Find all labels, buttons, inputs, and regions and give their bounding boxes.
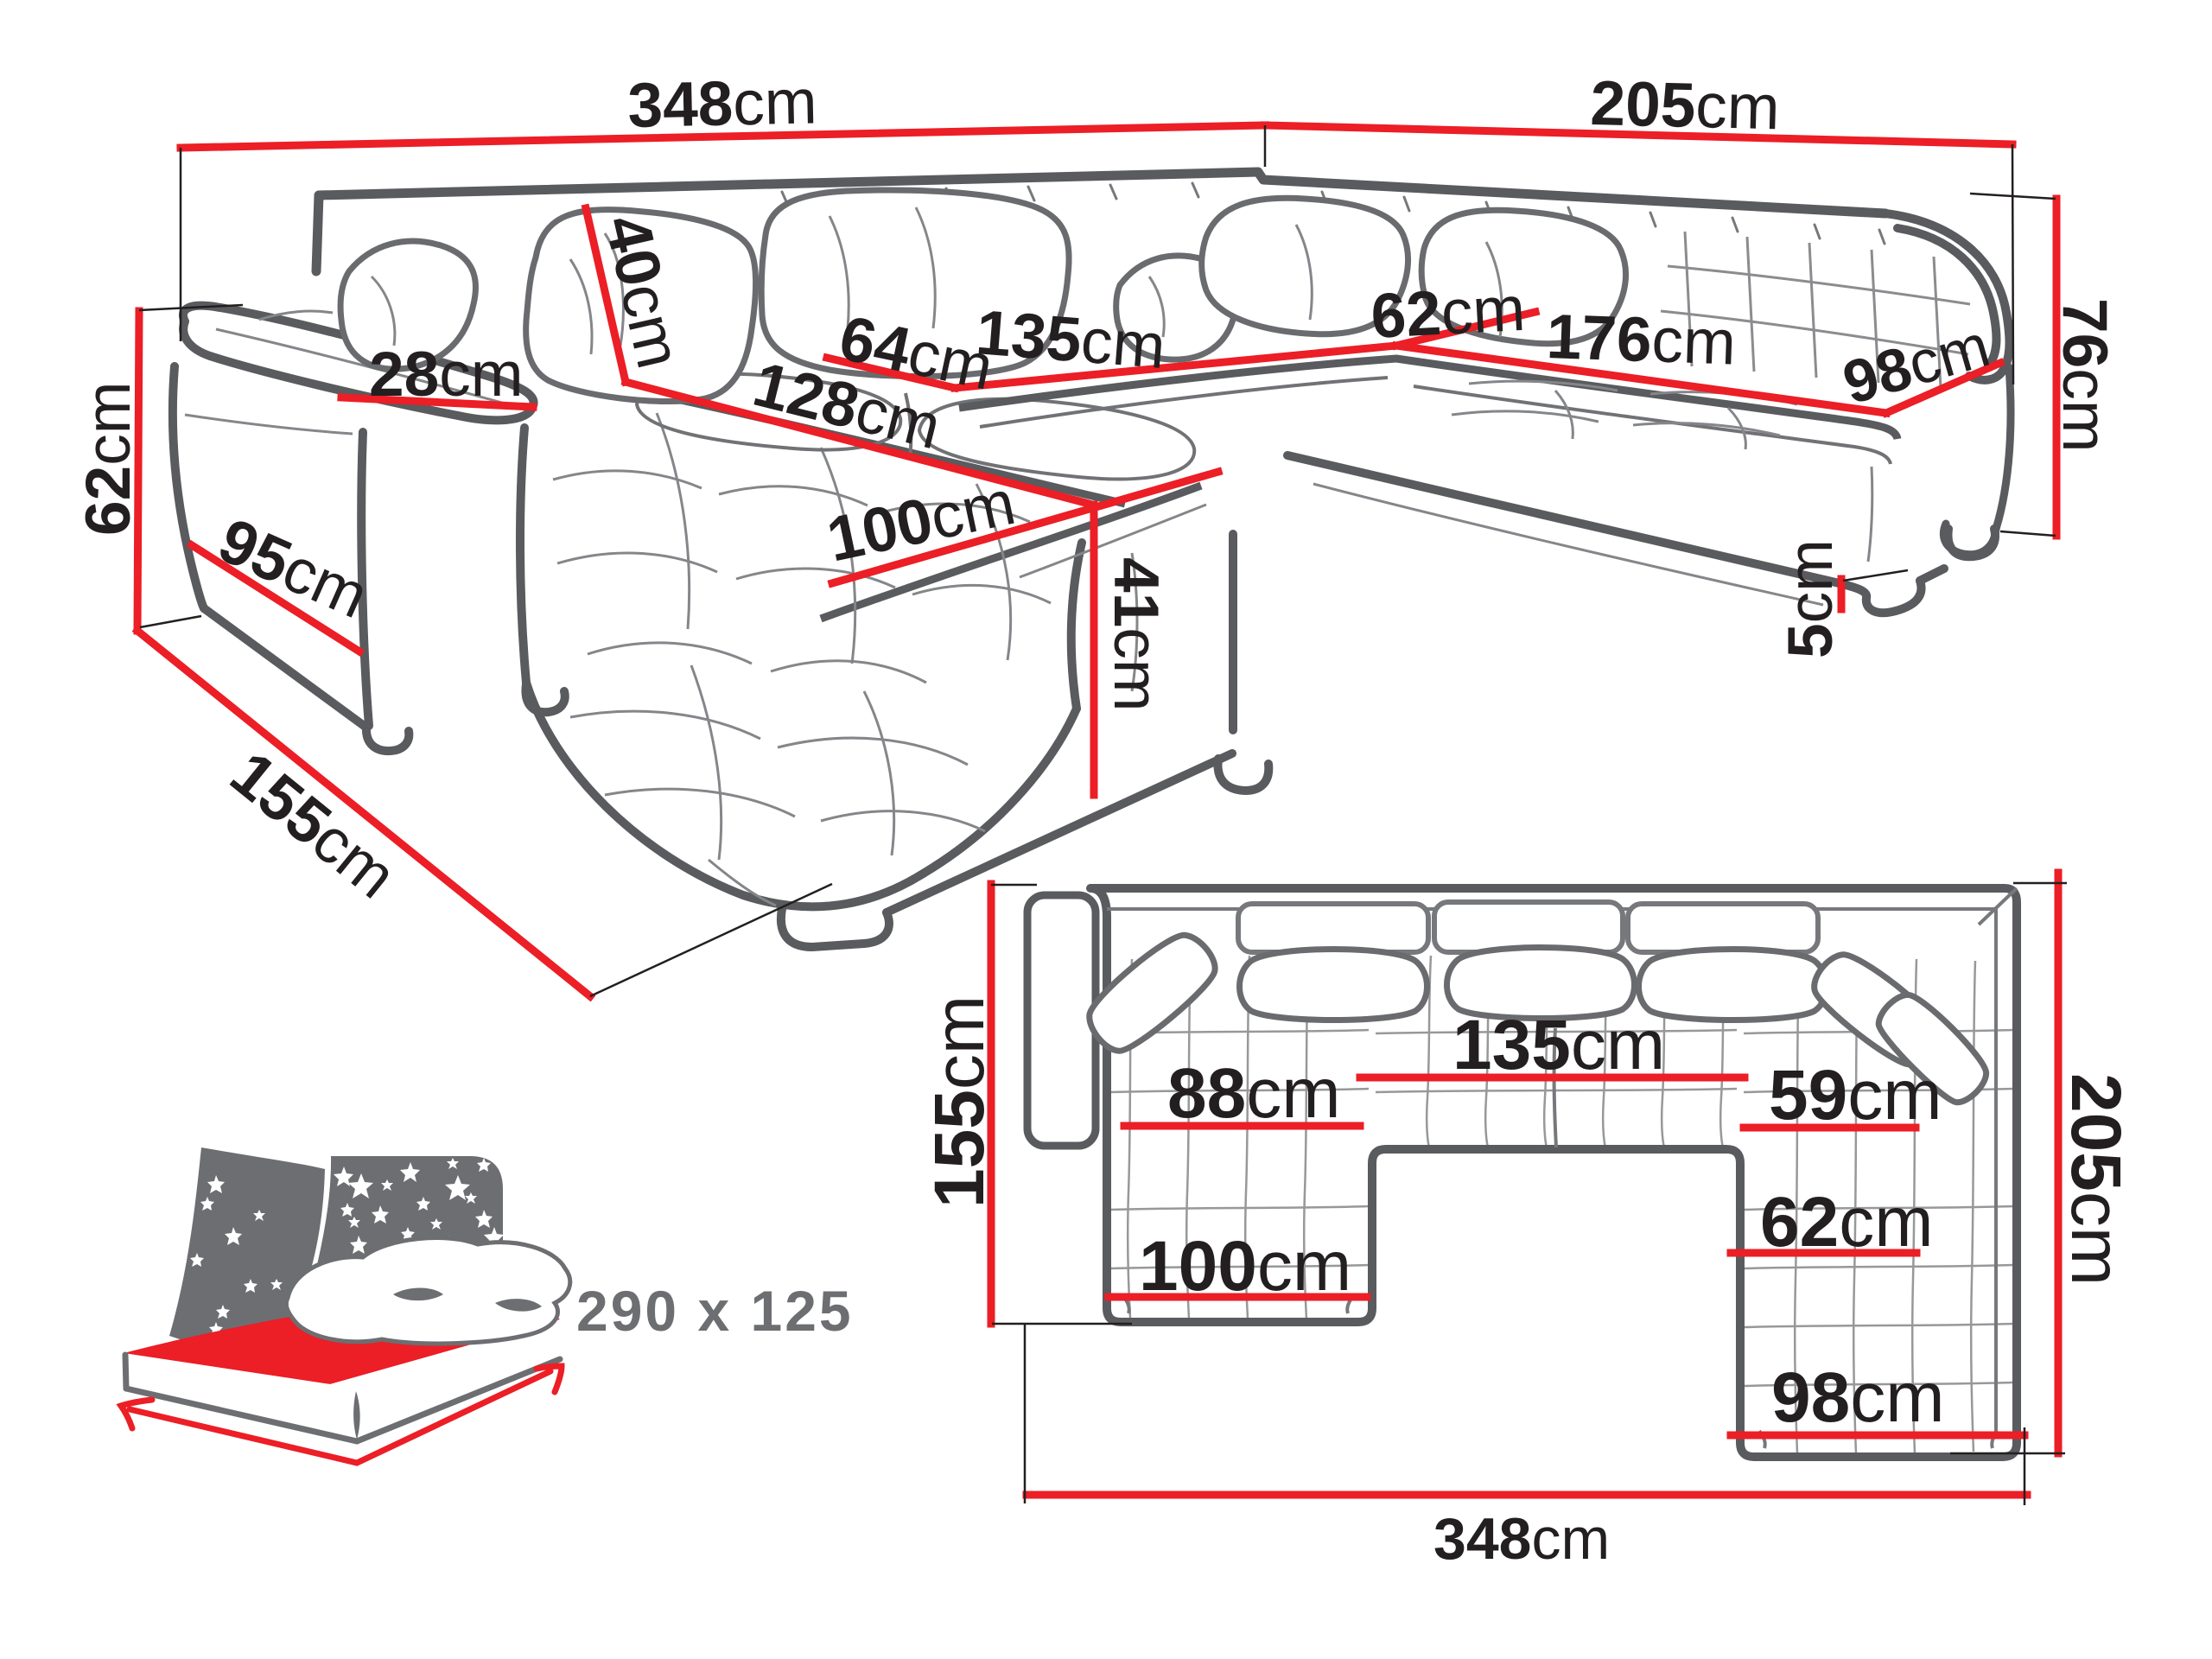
svg-text:205cm: 205cm: [2056, 1073, 2135, 1286]
svg-text:62cm: 62cm: [73, 381, 143, 536]
svg-text:88cm: 88cm: [1167, 1054, 1341, 1133]
svg-text:28cm: 28cm: [369, 340, 524, 410]
svg-text:176cm: 176cm: [1545, 302, 1737, 378]
svg-text:348cm: 348cm: [1433, 1506, 1610, 1572]
svg-text:135cm: 135cm: [1452, 1006, 1665, 1084]
svg-text:135cm: 135cm: [974, 297, 1168, 382]
svg-text:5cm: 5cm: [1776, 539, 1846, 658]
svg-text:348cm: 348cm: [627, 67, 818, 141]
svg-text:100cm: 100cm: [1139, 1227, 1351, 1306]
svg-text:62cm: 62cm: [1760, 1183, 1934, 1262]
svg-text:205cm: 205cm: [1590, 68, 1781, 143]
svg-text:76cm: 76cm: [2050, 298, 2120, 453]
svg-text:155cm: 155cm: [920, 995, 999, 1208]
svg-text:41cm: 41cm: [1101, 557, 1171, 712]
svg-text:290 x 125: 290 x 125: [576, 1279, 854, 1343]
svg-text:98cm: 98cm: [1771, 1358, 1945, 1437]
svg-text:59cm: 59cm: [1769, 1056, 1942, 1135]
svg-text:62cm: 62cm: [1370, 274, 1528, 352]
